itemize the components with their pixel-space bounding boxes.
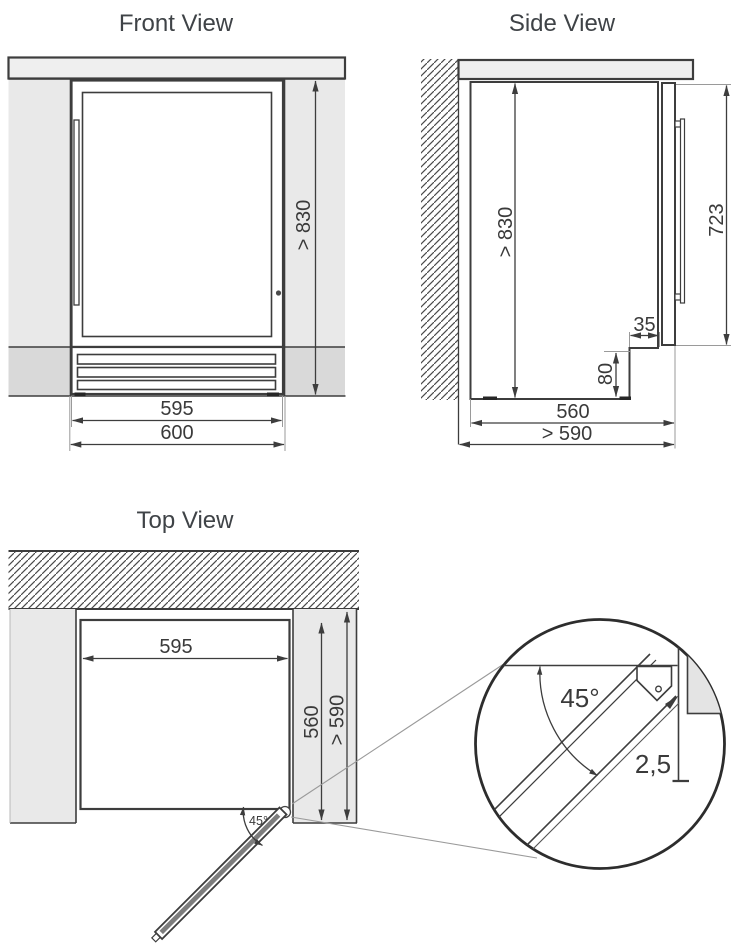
side-dim-recess-height-label: 80 [595, 363, 617, 385]
detail-angle-label: 45° [560, 683, 599, 713]
top-side-panel-left [10, 609, 76, 823]
front-door-handle [74, 120, 79, 305]
top-wall-hatch [9, 551, 360, 609]
top-dim-niche-depth-label: > 590 [327, 695, 349, 746]
detail-neighbour-panel [688, 640, 736, 714]
front-wall-left [9, 79, 71, 396]
side-dim-recess-depth: 35 [630, 314, 660, 347]
top-view: Top View 595 560 [9, 507, 538, 944]
front-vent-grille [78, 355, 276, 390]
front-door-glass [83, 93, 272, 337]
top-view-title: Top View [137, 507, 235, 534]
side-foot-rear [483, 397, 497, 401]
front-dim-appliance-width-label: 595 [160, 398, 193, 420]
side-foot-front [620, 397, 632, 401]
side-dim-niche-height-label: > 830 [495, 207, 517, 258]
side-dim-niche-depth-label: > 590 [542, 423, 593, 445]
front-foot-left [75, 393, 86, 397]
front-countertop [9, 58, 346, 79]
side-view-title: Side View [509, 10, 616, 37]
side-view: Side View > 830 723 [421, 10, 731, 449]
detail-hinge-screw [656, 686, 662, 692]
side-dim-niche-height: > 830 [495, 84, 517, 398]
detail-leader-lower [291, 817, 537, 858]
detail-view: 45° 2,5 [455, 619, 736, 881]
technical-drawing: Front View [0, 0, 736, 952]
side-door [662, 83, 675, 345]
side-door-handle [675, 119, 685, 303]
top-dim-body-depth-label: 560 [301, 705, 323, 738]
side-countertop [459, 60, 694, 79]
front-foot-right [267, 393, 279, 397]
side-dim-door-height-label: 723 [706, 203, 728, 236]
detail-clearance-label: 2,5 [635, 749, 671, 779]
front-door-lock-dot [276, 290, 281, 295]
side-dim-body-depth-label: 560 [556, 401, 589, 423]
front-view: Front View [9, 10, 346, 451]
side-dim-recess-depth-label: 35 [633, 314, 655, 336]
side-dim-recess-height: 80 [595, 352, 630, 397]
front-dim-niche-height-label: > 830 [293, 200, 315, 251]
installation-drawing-page: Front View [0, 0, 736, 952]
side-wall-hatch [421, 59, 459, 400]
top-door-angle-label: 45° [249, 814, 268, 828]
top-dim-appliance-width-label: 595 [159, 636, 192, 658]
front-dim-niche-width-label: 600 [160, 422, 193, 444]
side-dim-niche-depth: > 590 [460, 423, 675, 445]
front-appliance [72, 81, 284, 397]
front-view-title: Front View [119, 10, 234, 37]
